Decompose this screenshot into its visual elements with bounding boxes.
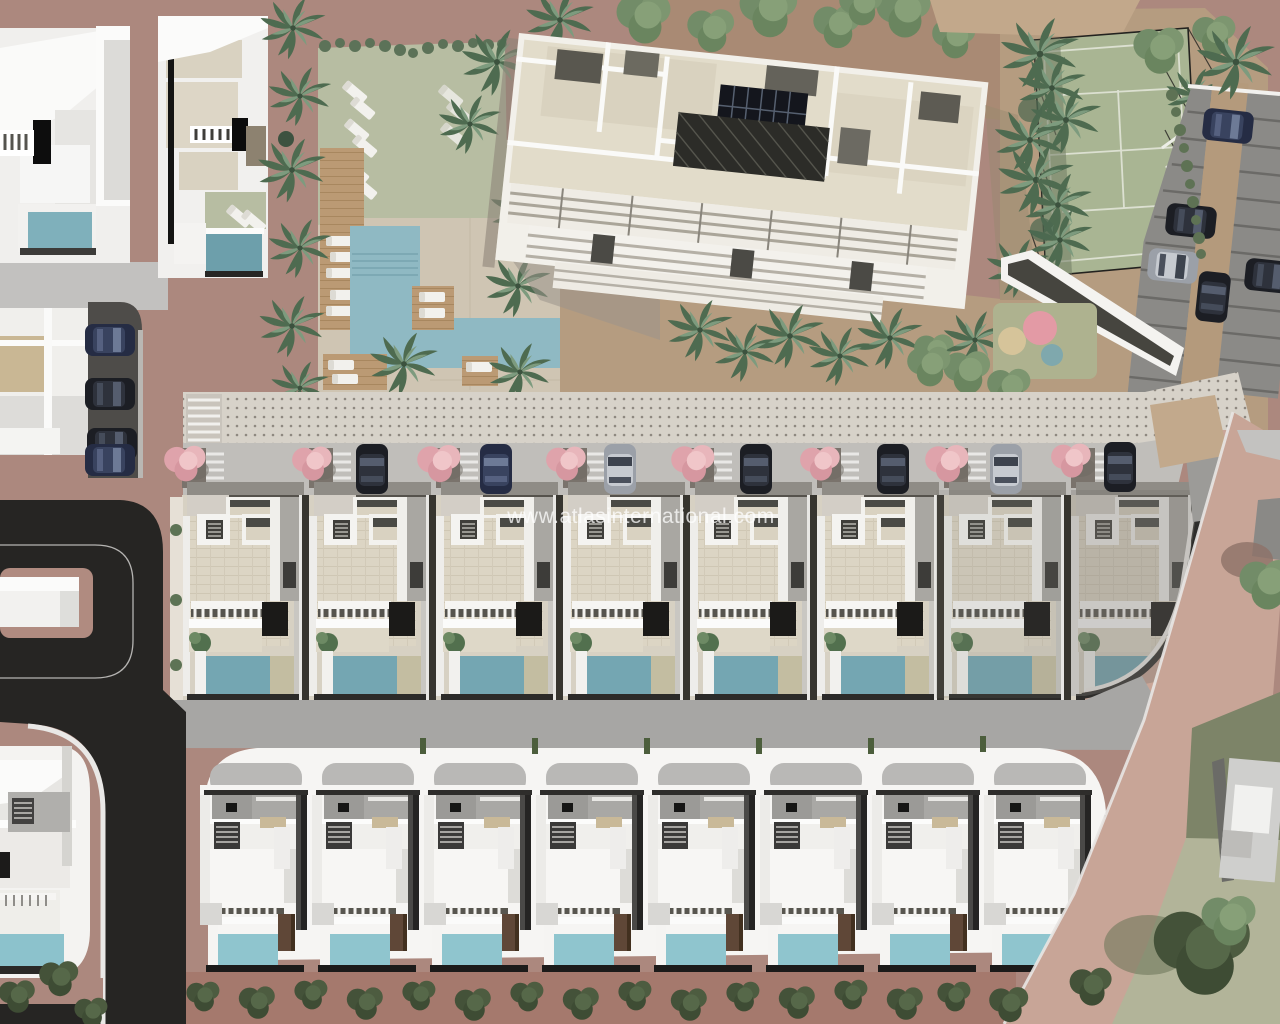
svg-text:www.atlasinternational.com: www.atlasinternational.com bbox=[506, 505, 774, 528]
